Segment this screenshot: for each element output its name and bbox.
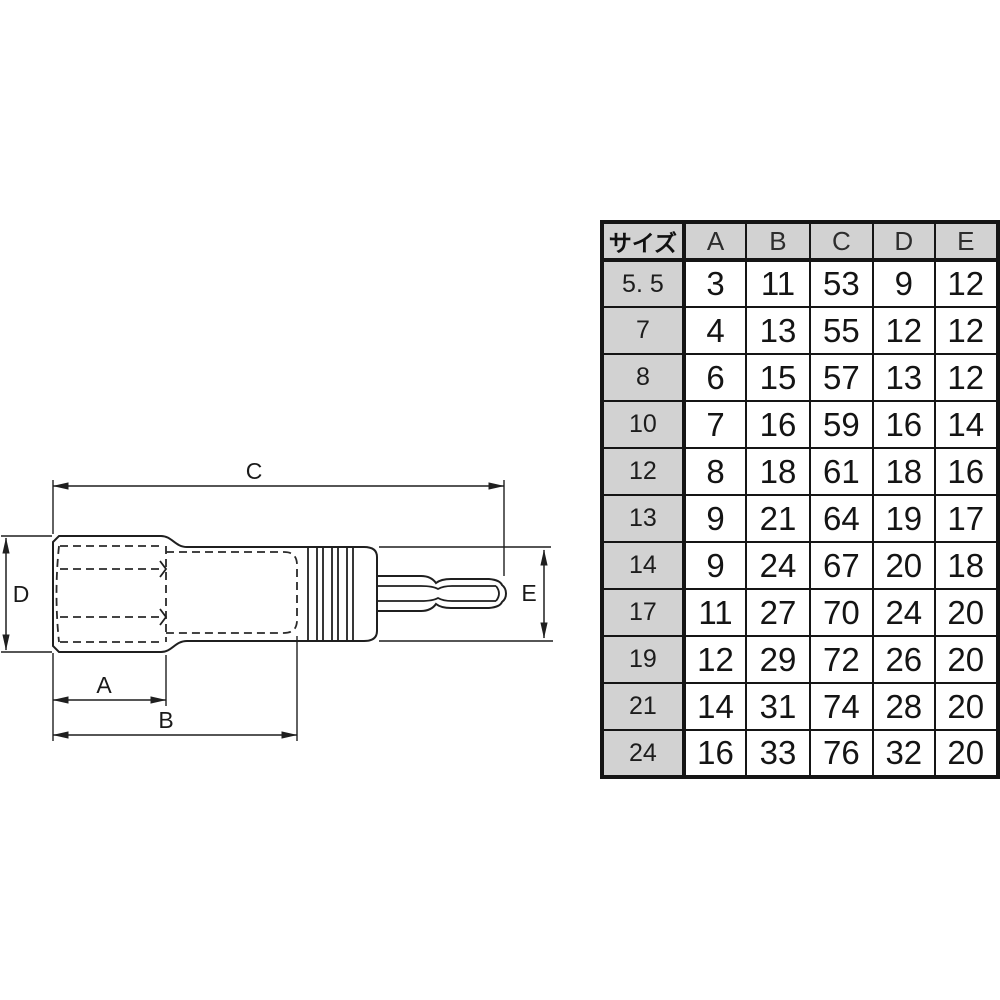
cell-d: 18 bbox=[873, 448, 934, 495]
row-size-label: 24 bbox=[602, 730, 684, 777]
cell-d: 13 bbox=[873, 354, 934, 401]
dim-label-a: A bbox=[96, 672, 112, 698]
col-header-size: サイズ bbox=[602, 222, 684, 260]
col-header-e: E bbox=[935, 222, 998, 260]
cell-c: 59 bbox=[810, 401, 873, 448]
cell-c: 55 bbox=[810, 307, 873, 354]
table-row: 13 9 21 64 19 17 bbox=[602, 495, 998, 542]
cell-a: 3 bbox=[684, 260, 746, 307]
cell-b: 24 bbox=[746, 542, 809, 589]
hex-shank bbox=[377, 576, 506, 611]
col-header-a: A bbox=[684, 222, 746, 260]
col-header-b: B bbox=[746, 222, 809, 260]
cell-b: 11 bbox=[746, 260, 809, 307]
cell-e: 18 bbox=[935, 542, 998, 589]
cell-d: 16 bbox=[873, 401, 934, 448]
row-size-label: 19 bbox=[602, 636, 684, 683]
cell-a: 16 bbox=[684, 730, 746, 777]
cell-c: 70 bbox=[810, 589, 873, 636]
body-bore-dashed bbox=[166, 552, 297, 633]
cell-b: 31 bbox=[746, 683, 809, 730]
cell-d: 28 bbox=[873, 683, 934, 730]
table-row: 21 14 31 74 28 20 bbox=[602, 683, 998, 730]
table-row: 7 4 13 55 12 12 bbox=[602, 307, 998, 354]
row-size-label: 14 bbox=[602, 542, 684, 589]
cell-e: 20 bbox=[935, 636, 998, 683]
cell-e: 16 bbox=[935, 448, 998, 495]
dim-label-b: B bbox=[158, 707, 173, 733]
cell-b: 18 bbox=[746, 448, 809, 495]
socket-hex-recess bbox=[57, 546, 167, 642]
cell-c: 76 bbox=[810, 730, 873, 777]
row-size-label: 12 bbox=[602, 448, 684, 495]
cell-d: 9 bbox=[873, 260, 934, 307]
socket-adapter-diagram: C D E A B bbox=[0, 440, 560, 760]
cell-c: 64 bbox=[810, 495, 873, 542]
cell-e: 14 bbox=[935, 401, 998, 448]
row-size-label: 21 bbox=[602, 683, 684, 730]
cell-d: 19 bbox=[873, 495, 934, 542]
cell-c: 61 bbox=[810, 448, 873, 495]
cell-e: 12 bbox=[935, 307, 998, 354]
cell-a: 7 bbox=[684, 401, 746, 448]
cell-a: 14 bbox=[684, 683, 746, 730]
cell-b: 27 bbox=[746, 589, 809, 636]
cell-b: 33 bbox=[746, 730, 809, 777]
dimension-e: E bbox=[379, 547, 553, 641]
col-header-c: C bbox=[810, 222, 873, 260]
table-row: 14 9 24 67 20 18 bbox=[602, 542, 998, 589]
cell-c: 67 bbox=[810, 542, 873, 589]
cell-b: 13 bbox=[746, 307, 809, 354]
cell-e: 20 bbox=[935, 683, 998, 730]
cell-e: 12 bbox=[935, 260, 998, 307]
dimension-a: A bbox=[53, 653, 166, 741]
dim-label-e: E bbox=[521, 580, 536, 606]
table-row: 19 12 29 72 26 20 bbox=[602, 636, 998, 683]
cell-e: 17 bbox=[935, 495, 998, 542]
cell-b: 21 bbox=[746, 495, 809, 542]
table-row: 12 8 18 61 18 16 bbox=[602, 448, 998, 495]
cell-a: 4 bbox=[684, 307, 746, 354]
cell-c: 57 bbox=[810, 354, 873, 401]
row-size-label: 10 bbox=[602, 401, 684, 448]
cell-b: 29 bbox=[746, 636, 809, 683]
cell-e: 20 bbox=[935, 730, 998, 777]
cell-a: 12 bbox=[684, 636, 746, 683]
col-header-d: D bbox=[873, 222, 934, 260]
cell-e: 20 bbox=[935, 589, 998, 636]
cell-d: 26 bbox=[873, 636, 934, 683]
cell-d: 12 bbox=[873, 307, 934, 354]
table-row: 10 7 16 59 16 14 bbox=[602, 401, 998, 448]
page: C D E A B bbox=[0, 0, 1000, 1000]
row-size-label: 8 bbox=[602, 354, 684, 401]
row-size-label: 7 bbox=[602, 307, 684, 354]
cell-d: 24 bbox=[873, 589, 934, 636]
cell-c: 53 bbox=[810, 260, 873, 307]
cell-d: 20 bbox=[873, 542, 934, 589]
cell-a: 8 bbox=[684, 448, 746, 495]
cell-a: 9 bbox=[684, 542, 746, 589]
dim-label-c: C bbox=[246, 458, 263, 484]
row-size-label: 17 bbox=[602, 589, 684, 636]
table-row: 8 6 15 57 13 12 bbox=[602, 354, 998, 401]
cell-d: 32 bbox=[873, 730, 934, 777]
table-row: 17 11 27 70 24 20 bbox=[602, 589, 998, 636]
cell-a: 9 bbox=[684, 495, 746, 542]
cell-a: 11 bbox=[684, 589, 746, 636]
dimension-c: C bbox=[53, 458, 504, 576]
collar-rings bbox=[308, 547, 353, 641]
row-size-label: 13 bbox=[602, 495, 684, 542]
size-spec-table: サイズ A B C D E 5. 5 3 11 53 9 12 7 4 13 5… bbox=[600, 220, 1000, 779]
cell-c: 74 bbox=[810, 683, 873, 730]
table-row: 24 16 33 76 32 20 bbox=[602, 730, 998, 777]
cell-e: 12 bbox=[935, 354, 998, 401]
table-row: 5. 5 3 11 53 9 12 bbox=[602, 260, 998, 307]
dim-label-d: D bbox=[13, 581, 30, 607]
row-size-label: 5. 5 bbox=[602, 260, 684, 307]
dimension-d: D bbox=[1, 536, 52, 652]
cell-c: 72 bbox=[810, 636, 873, 683]
adapter-outline bbox=[53, 536, 377, 652]
cell-a: 6 bbox=[684, 354, 746, 401]
header-row: サイズ A B C D E bbox=[602, 222, 998, 260]
cell-b: 16 bbox=[746, 401, 809, 448]
cell-b: 15 bbox=[746, 354, 809, 401]
